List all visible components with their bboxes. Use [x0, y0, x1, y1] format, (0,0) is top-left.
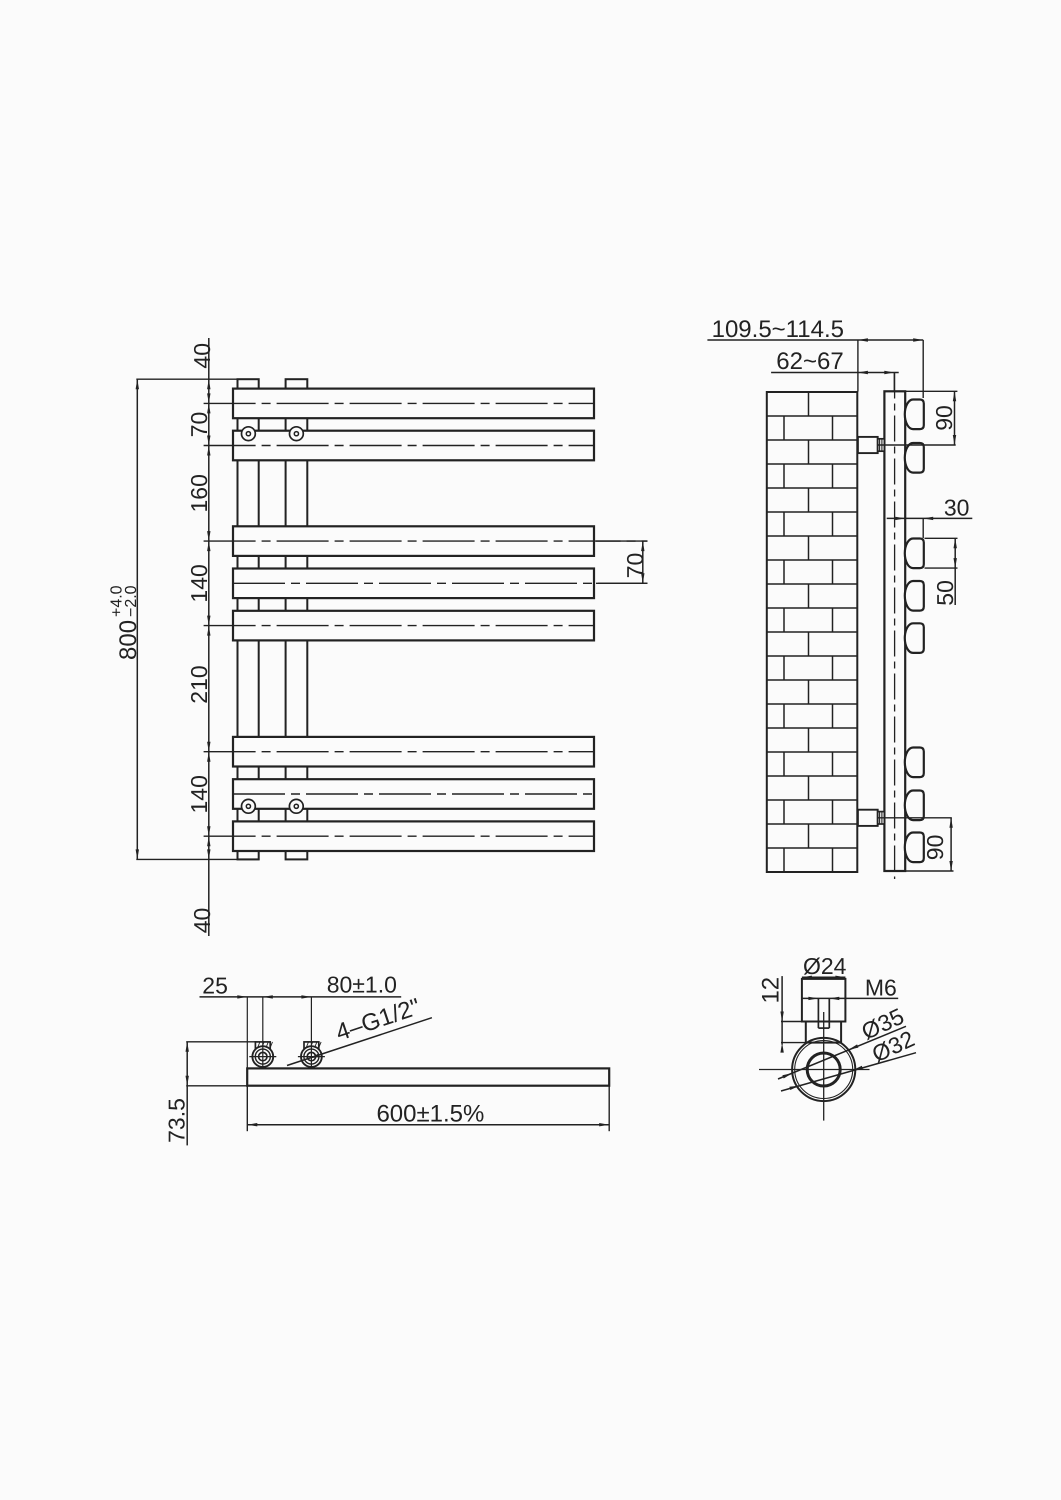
svg-text:109.5~114.5: 109.5~114.5 — [712, 316, 844, 343]
svg-text:800: 800 — [115, 620, 142, 660]
svg-text:30: 30 — [944, 494, 970, 520]
svg-text:40: 40 — [189, 908, 215, 934]
svg-text:70: 70 — [622, 553, 648, 579]
svg-text:−2.0: −2.0 — [123, 585, 140, 617]
svg-text:62~67: 62~67 — [776, 348, 843, 375]
svg-text:25: 25 — [202, 973, 228, 999]
svg-text:210: 210 — [186, 665, 212, 703]
svg-text:90: 90 — [922, 835, 948, 861]
svg-text:73.5: 73.5 — [164, 1098, 190, 1143]
svg-text:M6: M6 — [865, 974, 897, 1000]
svg-text:90: 90 — [931, 405, 957, 431]
svg-text:600±1.5%: 600±1.5% — [376, 1101, 484, 1128]
svg-text:Ø24: Ø24 — [803, 953, 847, 979]
svg-text:70: 70 — [186, 412, 212, 438]
svg-text:80±1.0: 80±1.0 — [327, 972, 397, 998]
svg-text:40: 40 — [189, 343, 215, 369]
svg-text:160: 160 — [186, 474, 212, 512]
svg-text:140: 140 — [186, 564, 212, 602]
svg-text:50: 50 — [932, 580, 958, 606]
svg-text:12: 12 — [758, 977, 785, 1004]
svg-text:140: 140 — [186, 775, 212, 813]
